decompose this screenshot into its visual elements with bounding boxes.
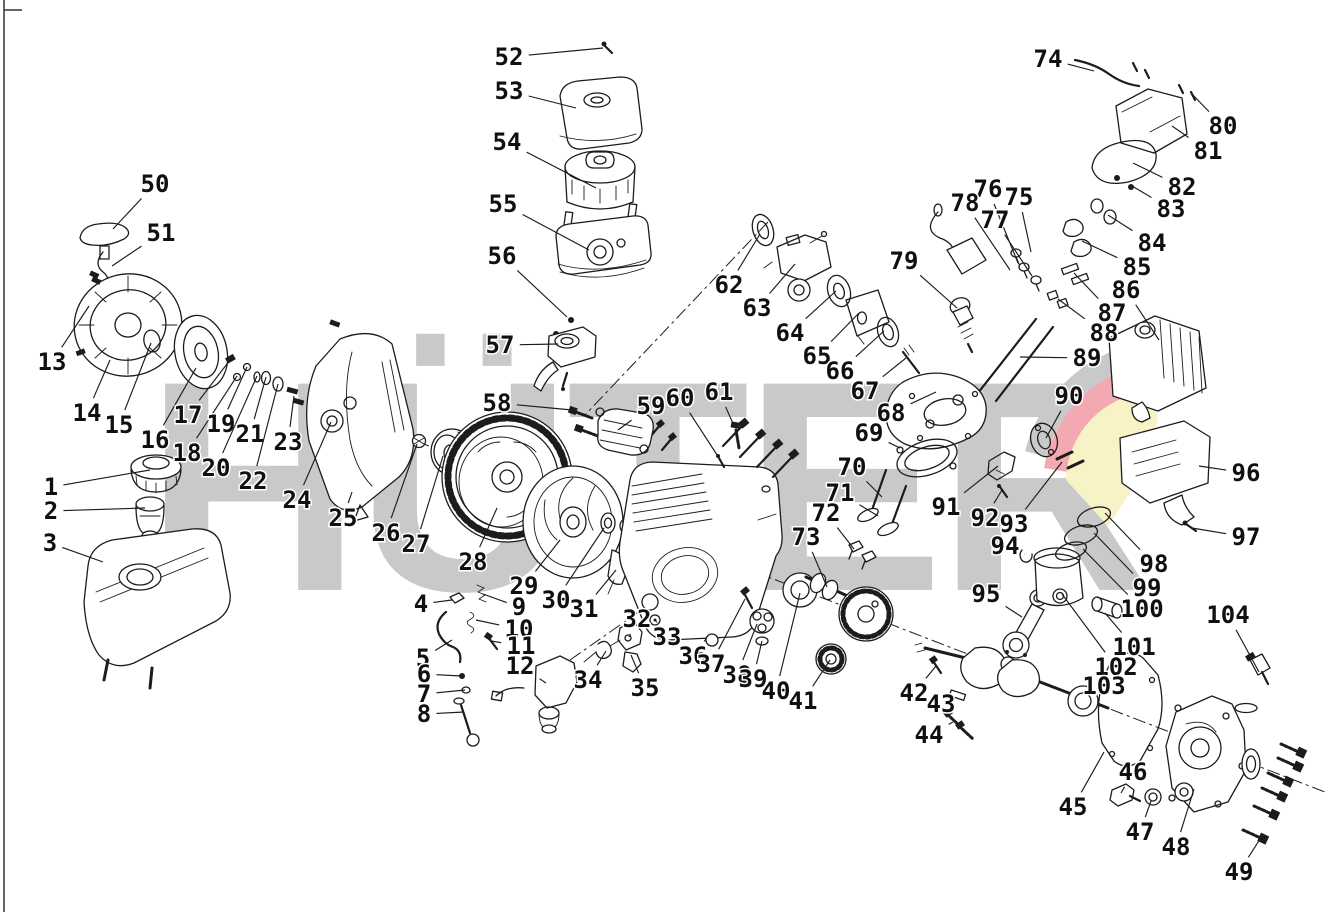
callout-64: 64 bbox=[776, 319, 805, 347]
callout-81: 81 bbox=[1194, 137, 1223, 165]
callout-61: 61 bbox=[705, 378, 734, 406]
callout-50: 50 bbox=[141, 170, 170, 198]
leader-line-56 bbox=[517, 270, 567, 317]
callout-78: 78 bbox=[951, 189, 980, 217]
callout-104: 104 bbox=[1206, 601, 1249, 629]
callout-33: 33 bbox=[653, 623, 682, 651]
callout-2: 2 bbox=[44, 497, 58, 525]
callout-13: 13 bbox=[38, 348, 67, 376]
callout-51: 51 bbox=[147, 219, 176, 247]
leader-line-7 bbox=[436, 690, 465, 693]
callout-43: 43 bbox=[927, 690, 956, 718]
leader-line-88 bbox=[1058, 299, 1085, 319]
leader-line-6 bbox=[436, 675, 461, 676]
leader-line-45 bbox=[1081, 752, 1104, 792]
leader-line-75 bbox=[1022, 212, 1031, 252]
part-rocker-nuts bbox=[1047, 290, 1068, 308]
callout-8: 8 bbox=[417, 700, 431, 728]
part-intake-gasket bbox=[749, 212, 778, 249]
callout-100: 100 bbox=[1120, 595, 1163, 623]
callout-92: 92 bbox=[971, 504, 1000, 532]
leader-line-42 bbox=[926, 666, 936, 678]
part-crank-screw bbox=[929, 655, 941, 673]
leader-line-82 bbox=[1133, 163, 1162, 177]
leader-line-51 bbox=[112, 246, 142, 266]
callout-80: 80 bbox=[1209, 112, 1238, 140]
part-rocker-arms bbox=[1063, 219, 1091, 256]
leader-line-52 bbox=[529, 48, 603, 55]
part-timing-gear bbox=[816, 644, 846, 674]
callout-34: 34 bbox=[574, 666, 603, 694]
callout-62: 62 bbox=[715, 271, 744, 299]
callout-22: 22 bbox=[239, 467, 268, 495]
callout-55: 55 bbox=[489, 190, 518, 218]
callout-83: 83 bbox=[1157, 195, 1186, 223]
callout-47: 47 bbox=[1126, 818, 1155, 846]
leader-line-83 bbox=[1132, 186, 1152, 198]
callout-89: 89 bbox=[1073, 344, 1102, 372]
callout-31: 31 bbox=[570, 595, 599, 623]
callout-18: 18 bbox=[173, 439, 202, 467]
callout-45: 45 bbox=[1059, 793, 1088, 821]
leader-line-62 bbox=[738, 234, 760, 270]
callout-32: 32 bbox=[623, 605, 652, 633]
callout-56: 56 bbox=[488, 242, 517, 270]
callout-60: 60 bbox=[666, 384, 695, 412]
callout-67: 67 bbox=[851, 377, 880, 405]
callout-79: 79 bbox=[890, 247, 919, 275]
callout-88: 88 bbox=[1090, 319, 1119, 347]
callout-40: 40 bbox=[762, 677, 791, 705]
callout-41: 41 bbox=[789, 687, 818, 715]
part-valve-cover bbox=[1116, 89, 1187, 153]
callout-27: 27 bbox=[402, 530, 431, 558]
part-carb-gasket bbox=[824, 272, 855, 309]
part-oil-seal bbox=[1145, 789, 1161, 805]
callout-23: 23 bbox=[274, 428, 303, 456]
callout-37: 37 bbox=[697, 650, 726, 678]
callout-74: 74 bbox=[1034, 45, 1063, 73]
leader-line-8 bbox=[436, 712, 464, 713]
callout-16: 16 bbox=[141, 426, 170, 454]
leader-line-97 bbox=[1192, 528, 1226, 534]
part-valve-tappets bbox=[1011, 249, 1041, 291]
part-starter-handle bbox=[80, 223, 129, 259]
part-governor-rod bbox=[1075, 60, 1139, 86]
callout-96: 96 bbox=[1232, 459, 1261, 487]
callout-46: 46 bbox=[1119, 758, 1148, 786]
callout-3: 3 bbox=[43, 529, 57, 557]
callout-35: 35 bbox=[631, 674, 660, 702]
callout-49: 49 bbox=[1225, 858, 1254, 886]
callout-12: 12 bbox=[506, 652, 535, 680]
callout-58: 58 bbox=[483, 389, 512, 417]
leader-line-50 bbox=[113, 199, 142, 230]
part-breather-valve bbox=[1110, 784, 1140, 806]
callout-91: 91 bbox=[932, 493, 961, 521]
part-air-filter-cover bbox=[560, 77, 642, 149]
leader-line-79 bbox=[920, 275, 957, 308]
callout-73: 73 bbox=[792, 523, 821, 551]
part-dipstick bbox=[454, 698, 479, 746]
callout-24: 24 bbox=[283, 486, 312, 514]
leader-line-2 bbox=[63, 508, 145, 511]
page-border bbox=[4, 0, 22, 912]
leader-line-57 bbox=[520, 344, 558, 345]
part-guard-screw bbox=[1183, 521, 1197, 532]
callout-14: 14 bbox=[73, 399, 102, 427]
callout-28: 28 bbox=[459, 548, 488, 576]
callout-90: 90 bbox=[1055, 382, 1084, 410]
callout-29: 29 bbox=[510, 572, 539, 600]
part-cover-screw bbox=[602, 42, 613, 54]
callout-42: 42 bbox=[900, 679, 929, 707]
part-crankcase-cover bbox=[1166, 696, 1246, 812]
leader-line-104 bbox=[1236, 630, 1259, 672]
callout-59: 59 bbox=[637, 392, 666, 420]
leader-line-44 bbox=[949, 722, 953, 724]
callout-15: 15 bbox=[105, 411, 134, 439]
leader-line-89 bbox=[1020, 357, 1067, 358]
callout-95: 95 bbox=[972, 580, 1001, 608]
callout-57: 57 bbox=[486, 331, 515, 359]
callout-97: 97 bbox=[1232, 523, 1261, 551]
callout-30: 30 bbox=[542, 586, 571, 614]
callout-77: 77 bbox=[981, 206, 1010, 234]
part-valve-keepers bbox=[1091, 199, 1116, 224]
callout-94: 94 bbox=[991, 532, 1020, 560]
part-air-filter-element bbox=[565, 151, 635, 209]
callout-48: 48 bbox=[1162, 833, 1191, 861]
part-flywheel-nut bbox=[413, 435, 426, 448]
leader-line-77 bbox=[1005, 235, 1032, 276]
callout-26: 26 bbox=[372, 519, 401, 547]
callout-54: 54 bbox=[493, 128, 522, 156]
exploded-parts-diagram: HÜTER bbox=[0, 0, 1339, 912]
callout-25: 25 bbox=[329, 504, 358, 532]
callout-53: 53 bbox=[495, 77, 524, 105]
leader-line-80 bbox=[1191, 93, 1209, 112]
callout-52: 52 bbox=[495, 43, 524, 71]
part-fuel-tank bbox=[84, 529, 230, 688]
parts-diagram-page: HÜTER bbox=[0, 0, 1339, 912]
leader-line-49 bbox=[1248, 836, 1262, 857]
callout-44: 44 bbox=[915, 721, 944, 749]
leader-line-64 bbox=[806, 291, 836, 319]
callout-21: 21 bbox=[236, 420, 265, 448]
part-carburetor bbox=[764, 232, 831, 302]
callout-70: 70 bbox=[838, 453, 867, 481]
callout-63: 63 bbox=[743, 294, 772, 322]
callout-17: 17 bbox=[174, 401, 203, 429]
callout-103: 103 bbox=[1082, 672, 1125, 700]
callout-20: 20 bbox=[202, 454, 231, 482]
part-cover-bearing bbox=[1242, 749, 1260, 779]
callout-4: 4 bbox=[414, 590, 428, 618]
callout-69: 69 bbox=[855, 419, 884, 447]
